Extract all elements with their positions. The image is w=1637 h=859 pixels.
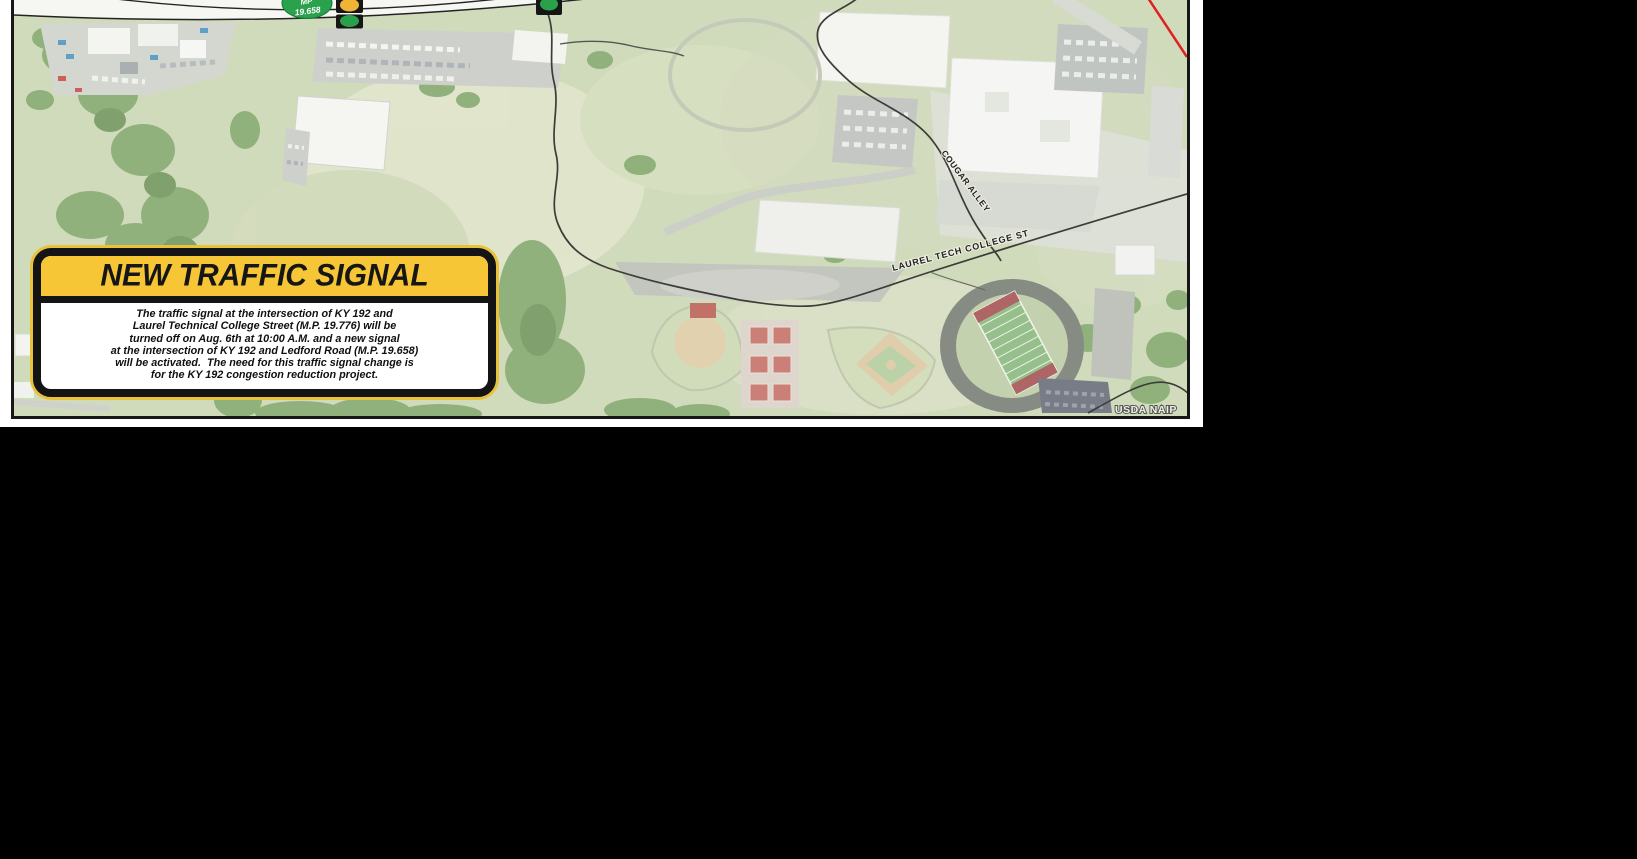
notice-line: at the intersection of KY 192 and Ledfor… xyxy=(47,345,482,357)
traffic-signal-laurel xyxy=(536,0,562,15)
notice-body: The traffic signal at the intersection o… xyxy=(41,303,488,382)
notice-line: will be activated. The need for this tra… xyxy=(47,357,482,369)
notice-line: for the KY 192 congestion reduction proj… xyxy=(47,369,482,381)
notice-line: The traffic signal at the intersection o… xyxy=(47,308,482,320)
notice-line: Laurel Technical College Street (M.P. 19… xyxy=(47,320,482,332)
page-background: COUGAR ALLEY LAUREL TECH COLLEGE ST MP 1… xyxy=(0,0,1203,427)
signal-green-light xyxy=(340,15,359,27)
notice-title: NEW TRAFFIC SIGNAL xyxy=(100,258,428,293)
notice-banner: NEW TRAFFIC SIGNAL xyxy=(41,256,488,303)
map-attribution: USDA NAIP xyxy=(1115,404,1177,416)
traffic-signal-notice: NEW TRAFFIC SIGNAL The traffic signal at… xyxy=(33,248,496,397)
notice-line: turned off on Aug. 6th at 10:00 A.M. and… xyxy=(47,333,482,345)
